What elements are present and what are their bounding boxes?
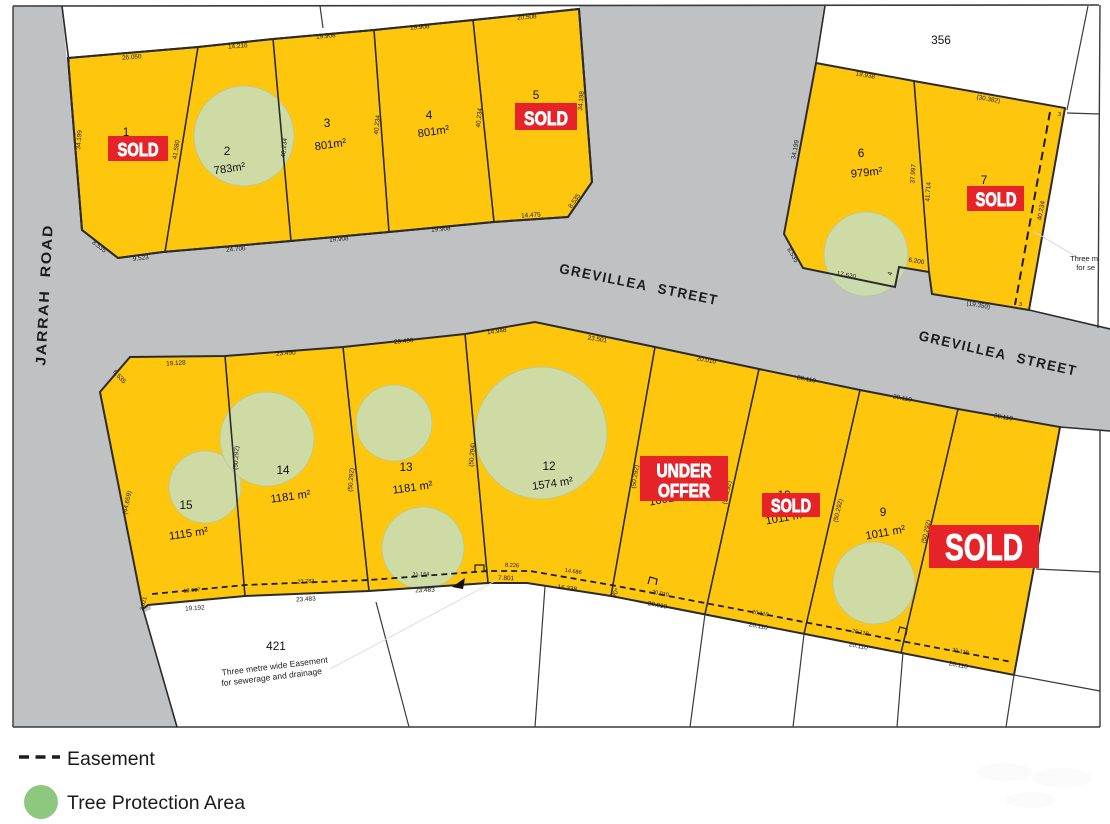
svg-text:21.164: 21.164: [412, 572, 429, 579]
svg-text:OFFER: OFFER: [658, 480, 710, 501]
svg-text:23.483: 23.483: [296, 595, 316, 603]
svg-text:19.697: 19.697: [183, 587, 200, 594]
svg-text:3: 3: [324, 116, 331, 130]
svg-text:23.483: 23.483: [415, 587, 435, 595]
svg-text:SOLD: SOLD: [524, 108, 568, 130]
svg-text:5: 5: [533, 88, 540, 102]
svg-text:Three m: Three m: [1070, 254, 1098, 263]
svg-text:421: 421: [266, 639, 286, 653]
svg-text:for se: for se: [1076, 263, 1095, 272]
svg-text:7.801: 7.801: [498, 575, 515, 583]
svg-text:14.475: 14.475: [521, 211, 541, 219]
svg-text:9: 9: [880, 505, 887, 519]
svg-text:7: 7: [981, 173, 988, 187]
svg-text:SOLD: SOLD: [118, 139, 159, 160]
svg-text:356: 356: [931, 33, 951, 47]
svg-text:UNDER: UNDER: [657, 460, 712, 481]
svg-text:6: 6: [858, 146, 865, 160]
svg-text:41.714: 41.714: [924, 181, 932, 201]
svg-text:3: 3: [1019, 302, 1022, 308]
svg-text:19.192: 19.192: [185, 604, 205, 612]
svg-text:Tree Protection Area: Tree Protection Area: [67, 792, 245, 814]
svg-text:14: 14: [276, 463, 290, 477]
svg-text:8.226: 8.226: [505, 563, 519, 570]
svg-text:23.490: 23.490: [276, 349, 296, 357]
svg-text:2: 2: [224, 144, 231, 158]
svg-text:4: 4: [426, 108, 433, 122]
svg-text:SOLD: SOLD: [771, 496, 811, 516]
svg-text:3: 3: [1058, 112, 1061, 118]
svg-text:12: 12: [542, 459, 555, 473]
svg-text:19.128: 19.128: [166, 359, 186, 367]
svg-text:23.783: 23.783: [297, 579, 314, 586]
svg-text:13: 13: [399, 460, 413, 474]
svg-text:SOLD: SOLD: [976, 189, 1017, 211]
svg-text:37.997: 37.997: [909, 163, 917, 183]
svg-text:15: 15: [179, 498, 193, 512]
svg-text:Easement: Easement: [67, 748, 155, 770]
svg-text:SOLD: SOLD: [945, 527, 1023, 568]
